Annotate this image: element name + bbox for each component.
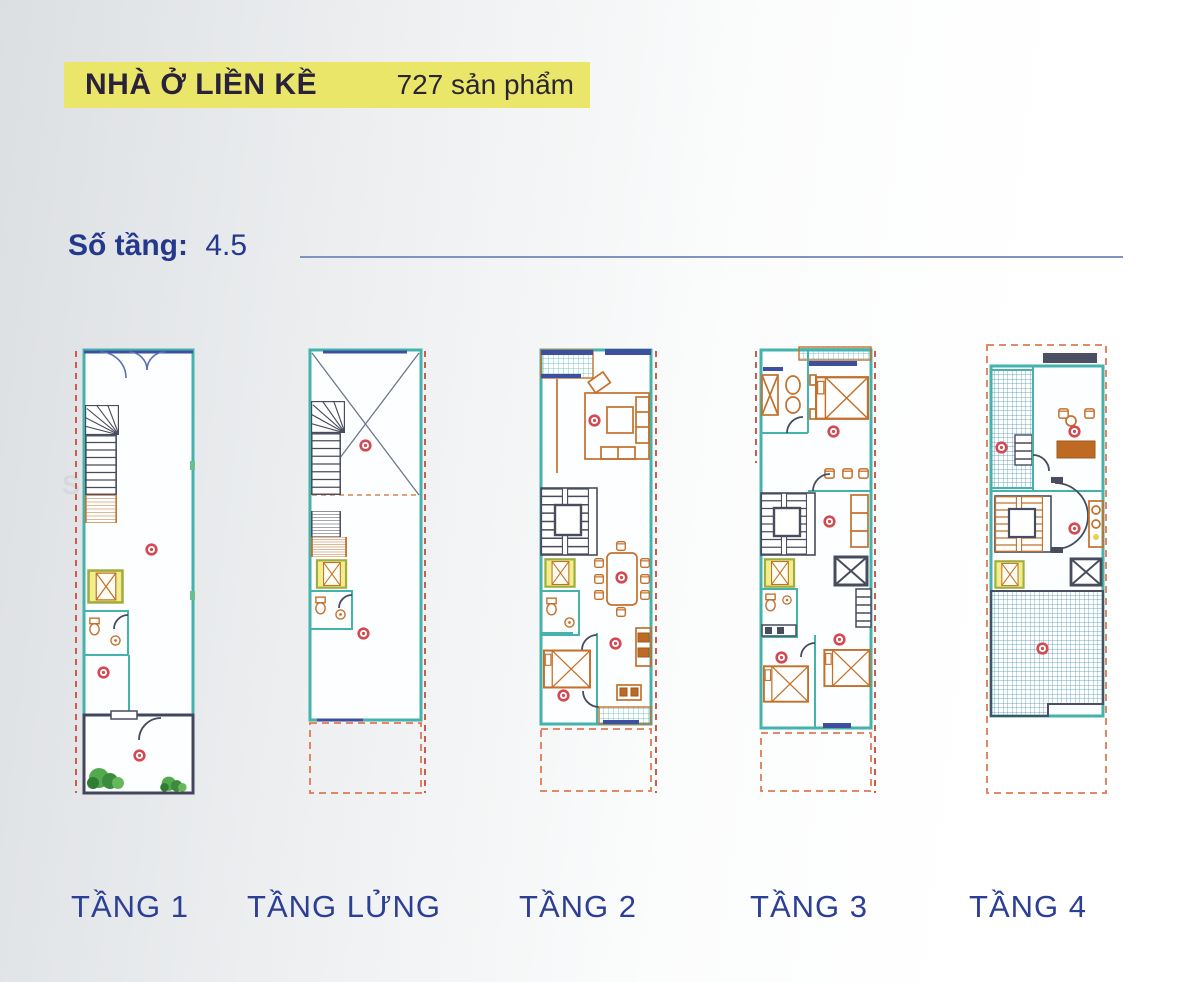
position-marker-icon — [590, 416, 600, 426]
elevator-icon — [995, 561, 1023, 587]
floor-plan-drawing — [753, 343, 878, 798]
position-marker-icon — [559, 691, 569, 701]
floor-plan-tang-4 — [985, 343, 1108, 798]
floors-label: Số tầng: — [68, 229, 188, 262]
bed-icon — [544, 651, 590, 688]
staircase — [995, 496, 1051, 552]
plan-label-tang-1: TẦNG 1 — [71, 889, 189, 925]
floor-plan-tang-3 — [753, 343, 878, 798]
staircase — [541, 488, 597, 555]
wall-tick — [190, 591, 195, 600]
header-band: NHÀ Ở LIỀN KỀ 727 sản phẩm — [64, 62, 590, 108]
void-box-icon — [835, 557, 867, 585]
position-marker-icon — [1038, 644, 1048, 654]
staircase — [761, 493, 815, 555]
rear-terrace — [991, 591, 1103, 716]
product-count: 727 sản phẩm — [397, 69, 574, 101]
master-bedroom — [810, 375, 868, 419]
position-marker-icon — [135, 751, 145, 761]
position-marker-icon — [829, 427, 839, 437]
elevator-icon — [765, 559, 794, 586]
floors-value: 4.5 — [205, 229, 247, 262]
staircase — [85, 405, 119, 523]
elevator-icon — [317, 560, 346, 587]
elevator-icon — [89, 571, 123, 603]
window-bar — [605, 349, 651, 355]
position-marker-icon — [1070, 427, 1080, 437]
altar-table — [1057, 441, 1095, 458]
plan-label-tang-3: TẦNG 3 — [750, 889, 868, 925]
floor-plan-tang-2 — [533, 343, 659, 798]
position-marker-icon — [359, 629, 369, 639]
plan-label-tang-lung: TẦNG LỬNG — [247, 889, 441, 925]
staircase — [311, 401, 345, 494]
outer-wall — [84, 350, 193, 715]
position-marker-icon — [825, 517, 835, 527]
front-terrace — [991, 370, 1033, 488]
elevator-icon — [545, 559, 574, 586]
position-marker-icon — [1070, 524, 1080, 534]
position-marker-icon — [99, 668, 109, 678]
position-marker-icon — [777, 653, 787, 663]
open-lot-area — [761, 733, 871, 791]
position-marker-icon — [611, 639, 621, 649]
position-marker-icon — [835, 635, 845, 645]
open-lot-area — [541, 729, 651, 791]
plan-label-tang-4: TẦNG 4 — [969, 889, 1087, 925]
wardrobe — [856, 589, 871, 627]
plan-label-tang-2: TẦNG 2 — [519, 889, 637, 925]
wall-tick — [190, 461, 195, 470]
floor-plan-drawing — [985, 343, 1108, 798]
floor-plan-tang-1 — [73, 343, 200, 798]
floor-plan-drawing — [303, 343, 428, 798]
floor-plan-drawing — [533, 343, 659, 798]
rear-wall-bar — [823, 723, 851, 728]
front-balcony — [541, 350, 593, 378]
floor-plan-drawing — [73, 343, 200, 798]
page-title: NHÀ Ở LIỀN KỀ — [85, 68, 317, 102]
void-box-icon — [1071, 559, 1101, 585]
position-marker-icon — [361, 441, 371, 451]
position-marker-icon — [147, 545, 157, 555]
window-bar — [1043, 353, 1097, 363]
garden — [84, 711, 193, 793]
bed-icon — [816, 377, 868, 419]
bed-icon — [764, 666, 808, 701]
open-void-area — [310, 723, 421, 793]
floor-plan-tang-lung — [303, 343, 428, 798]
bed-icon — [824, 650, 869, 686]
position-marker-icon — [617, 573, 627, 583]
divider-line — [300, 256, 1123, 258]
position-marker-icon — [997, 443, 1007, 453]
floors-info: Số tầng: 4.5 — [68, 229, 247, 263]
